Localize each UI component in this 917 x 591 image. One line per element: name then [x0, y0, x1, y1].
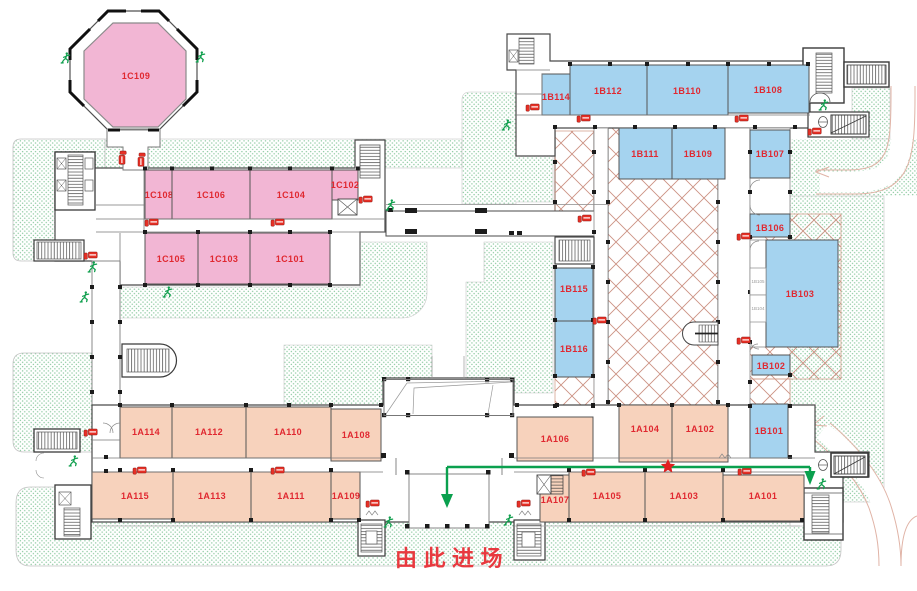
svg-text:1A113: 1A113: [198, 491, 226, 501]
svg-text:1A107: 1A107: [541, 495, 570, 505]
svg-text:1B106: 1B106: [756, 223, 785, 233]
svg-text:1C105: 1C105: [157, 254, 186, 264]
svg-text:1C102: 1C102: [331, 180, 360, 190]
svg-text:1A102: 1A102: [686, 424, 715, 434]
svg-text:1C106: 1C106: [197, 190, 226, 200]
svg-text:1B111: 1B111: [631, 149, 659, 159]
svg-text:1B114: 1B114: [542, 92, 570, 102]
svg-text:1A111: 1A111: [277, 491, 305, 501]
svg-text:1B107: 1B107: [756, 149, 785, 159]
svg-text:1A112: 1A112: [195, 427, 223, 437]
svg-text:1B110: 1B110: [673, 86, 701, 96]
svg-text:1A114: 1A114: [132, 427, 160, 437]
svg-text:1C109: 1C109: [122, 71, 151, 81]
svg-text:1A104: 1A104: [631, 424, 660, 434]
svg-text:1A106: 1A106: [541, 434, 570, 444]
svg-text:1A109: 1A109: [332, 491, 361, 501]
svg-text:1A101: 1A101: [749, 491, 778, 501]
svg-text:1B103: 1B103: [786, 289, 815, 299]
svg-text:1C108: 1C108: [145, 190, 174, 200]
svg-text:1B104: 1B104: [751, 306, 765, 311]
svg-text:1B115: 1B115: [560, 284, 588, 294]
svg-text:1B112: 1B112: [594, 86, 622, 96]
svg-text:1C103: 1C103: [210, 254, 239, 264]
svg-text:1A108: 1A108: [342, 430, 371, 440]
svg-text:1A105: 1A105: [593, 491, 622, 501]
svg-text:1A110: 1A110: [274, 427, 302, 437]
svg-text:1B102: 1B102: [757, 361, 786, 371]
svg-text:由此进场: 由此进场: [395, 546, 509, 571]
svg-text:1A103: 1A103: [670, 491, 699, 501]
svg-text:1B101: 1B101: [755, 426, 784, 436]
svg-text:1B108: 1B108: [754, 85, 783, 95]
svg-text:1B116: 1B116: [560, 344, 588, 354]
svg-text:1B109: 1B109: [684, 149, 713, 159]
svg-text:1A115: 1A115: [121, 491, 149, 501]
svg-text:1C101: 1C101: [276, 254, 305, 264]
svg-text:1B105: 1B105: [751, 279, 765, 284]
svg-text:1C104: 1C104: [277, 190, 306, 200]
